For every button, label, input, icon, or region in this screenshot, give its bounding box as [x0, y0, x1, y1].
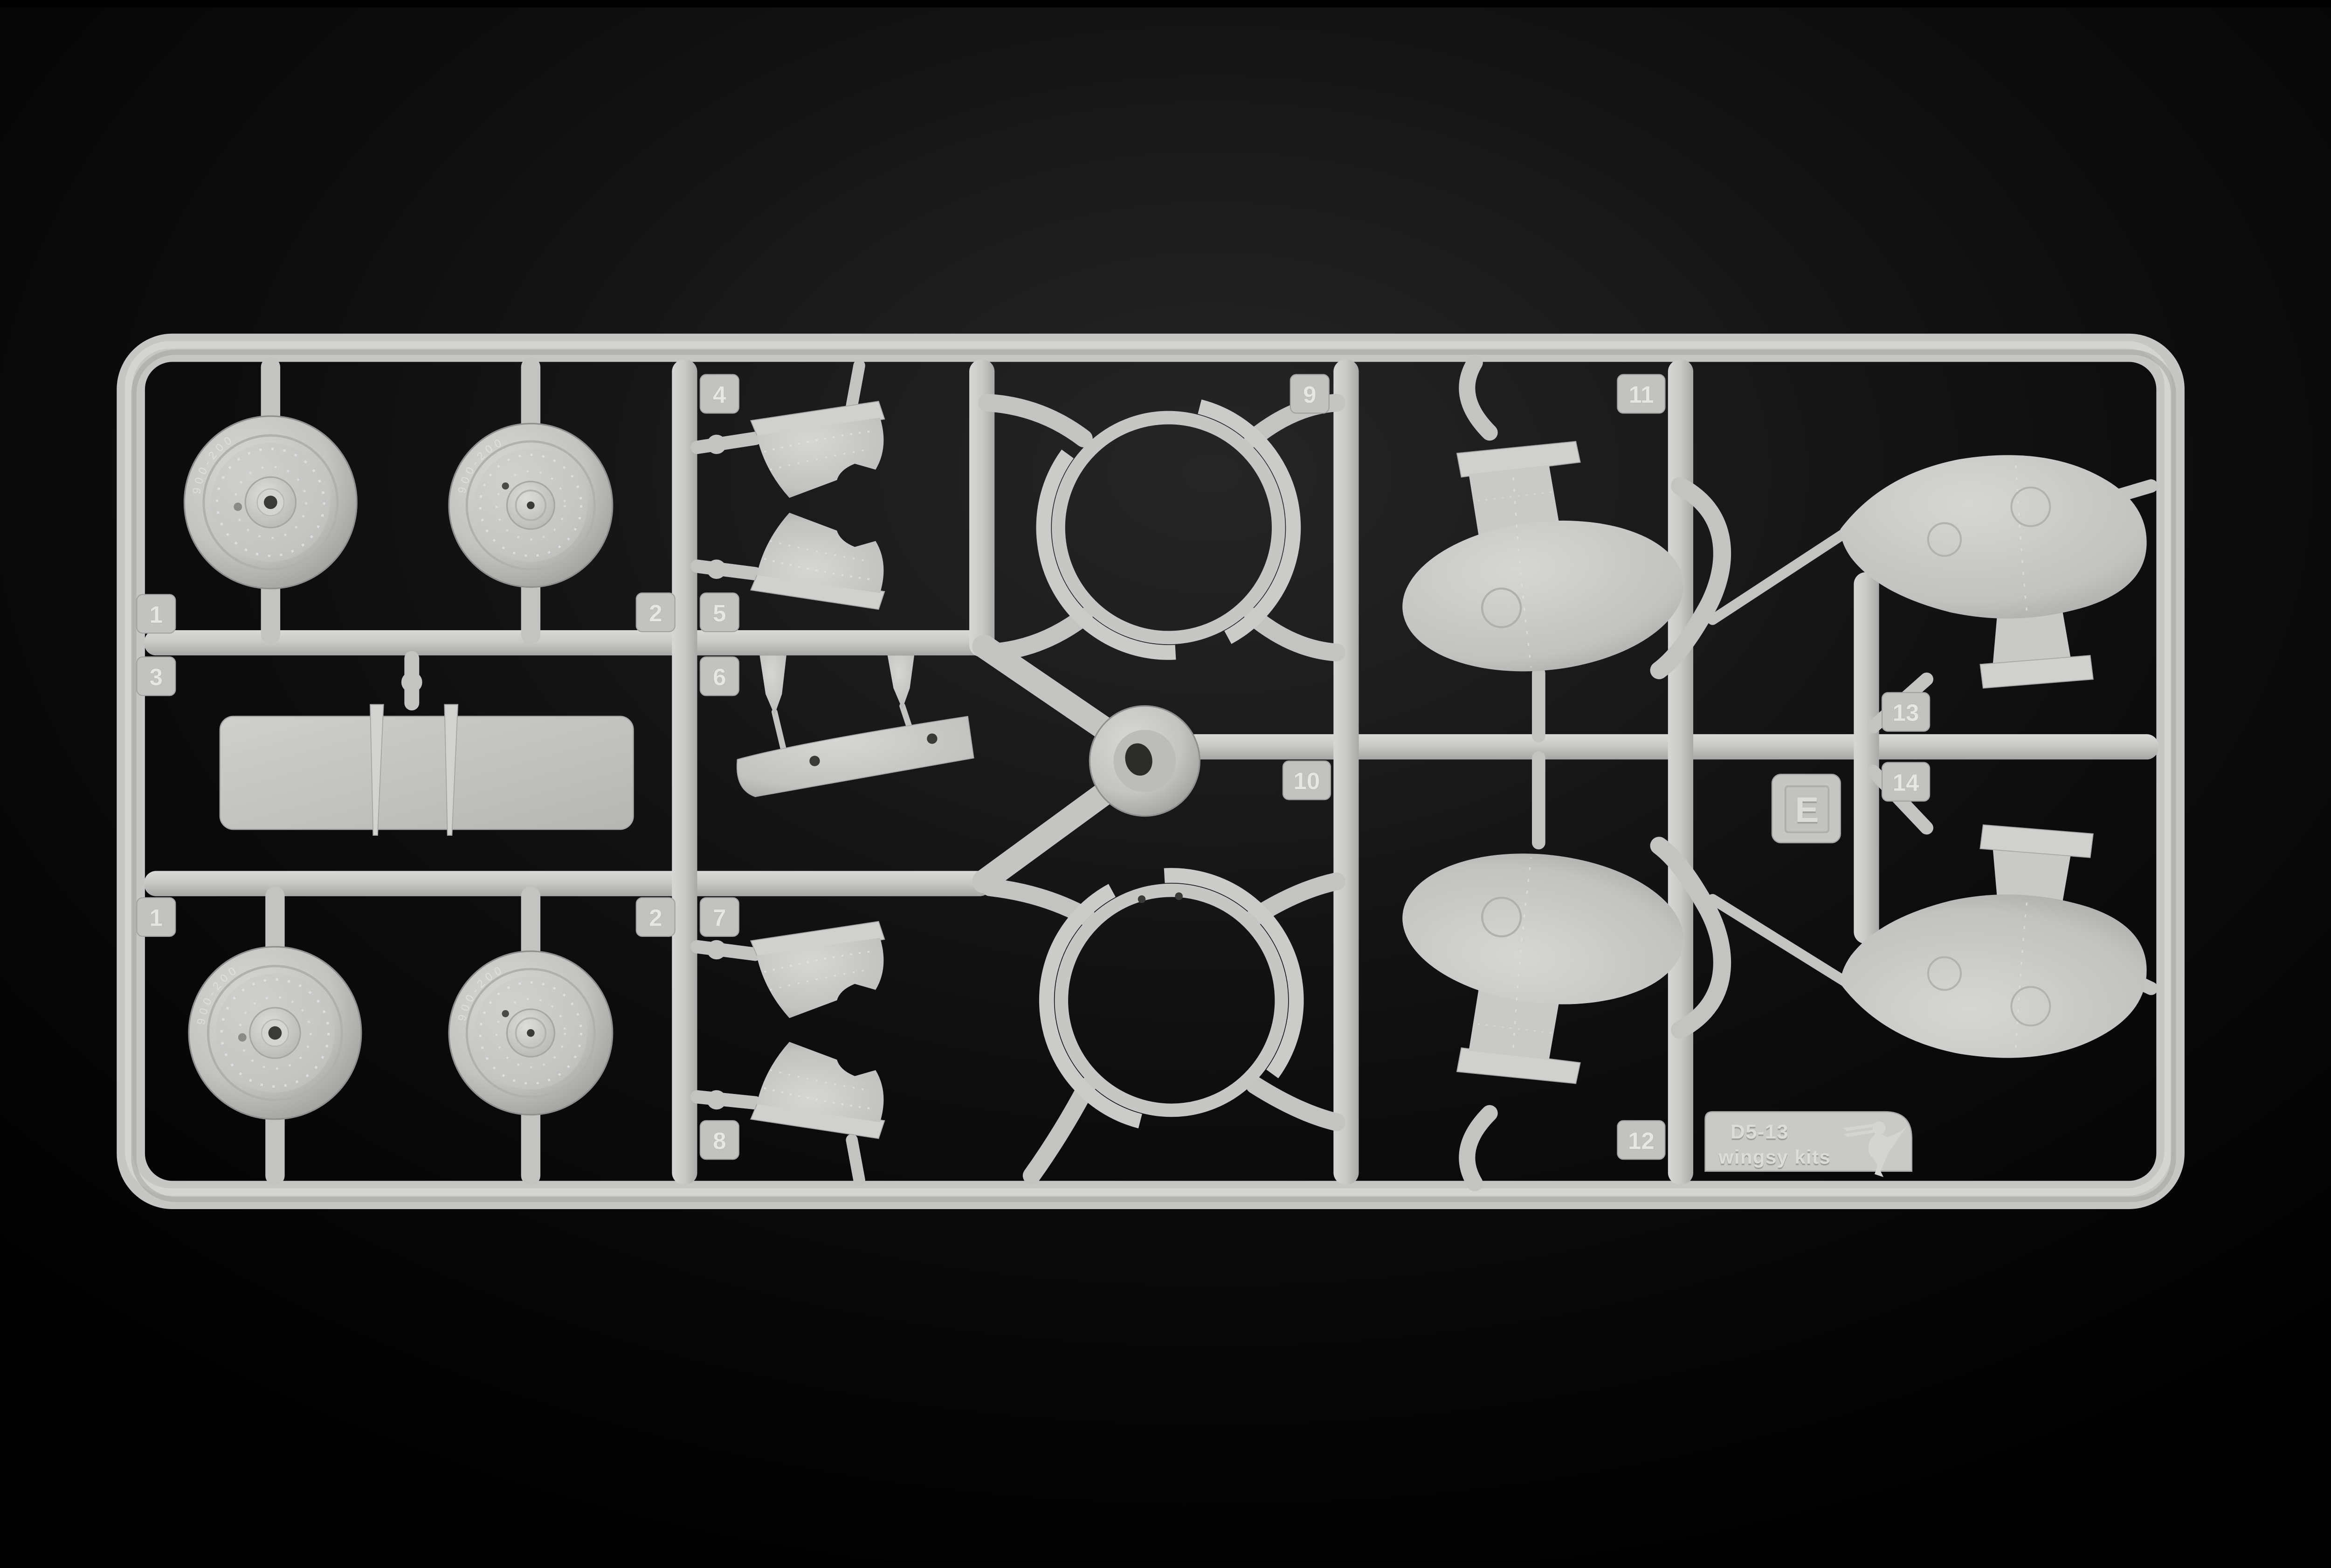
tab-2-bottom: 2: [636, 898, 675, 936]
svg-text:3: 3: [150, 664, 163, 690]
part-2-wheel-top: [449, 424, 613, 587]
sprue-letter: E: [1795, 790, 1819, 830]
svg-text:1: 1: [150, 601, 163, 628]
runner-v5: [1854, 572, 1879, 944]
part-1-wheel-bottom: [189, 947, 361, 1119]
tab-3: 3: [137, 657, 175, 695]
tab-6: 6: [700, 657, 739, 695]
svg-text:13: 13: [1893, 699, 1919, 726]
svg-text:8: 8: [713, 1128, 726, 1154]
tab-1-top: 1: [137, 594, 175, 633]
svg-text:7: 7: [713, 905, 726, 931]
part-3-stabilizer-panel: [220, 704, 633, 835]
svg-text:9: 9: [1303, 381, 1316, 408]
tab-14: 14: [1882, 763, 1930, 801]
tab-7: 7: [700, 898, 739, 936]
tab-8: 8: [700, 1121, 739, 1159]
tab-5: 5: [700, 593, 739, 632]
svg-text:11: 11: [1628, 381, 1654, 408]
tab-4: 4: [700, 374, 739, 413]
part-2-wheel-bottom: [449, 951, 613, 1115]
svg-text:12: 12: [1628, 1128, 1655, 1154]
part-1-wheel-top: [184, 416, 357, 589]
tab-13: 13: [1882, 693, 1930, 731]
runner-v1: [672, 360, 697, 1185]
svg-text:6: 6: [713, 664, 726, 690]
svg-text:2: 2: [649, 905, 662, 931]
sprue-letter-plate: E: [1772, 774, 1841, 843]
svg-text:4: 4: [713, 381, 726, 408]
svg-text:5: 5: [713, 600, 726, 626]
sprue-photo: 900-200 900-200: [0, 0, 2331, 1568]
tab-1-bottom: 1: [137, 898, 175, 936]
tab-11: 11: [1617, 374, 1665, 413]
svg-text:1: 1: [150, 905, 163, 931]
kit-code: D5-13: [1731, 1121, 1789, 1143]
brand-name: wingsy kits: [1718, 1146, 1831, 1168]
svg-text:2: 2: [649, 600, 662, 626]
svg-text:10: 10: [1294, 768, 1320, 794]
tab-2-top: 2: [636, 593, 675, 632]
tab-9: 9: [1290, 374, 1329, 413]
center-hub-part: [1090, 706, 1200, 816]
tab-12: 12: [1617, 1121, 1665, 1159]
brand-plate: D5-13 wingsy kits: [1705, 1112, 1912, 1177]
runner-v3: [1333, 360, 1359, 1185]
tab-10: 10: [1283, 761, 1331, 800]
svg-text:14: 14: [1893, 769, 1919, 796]
